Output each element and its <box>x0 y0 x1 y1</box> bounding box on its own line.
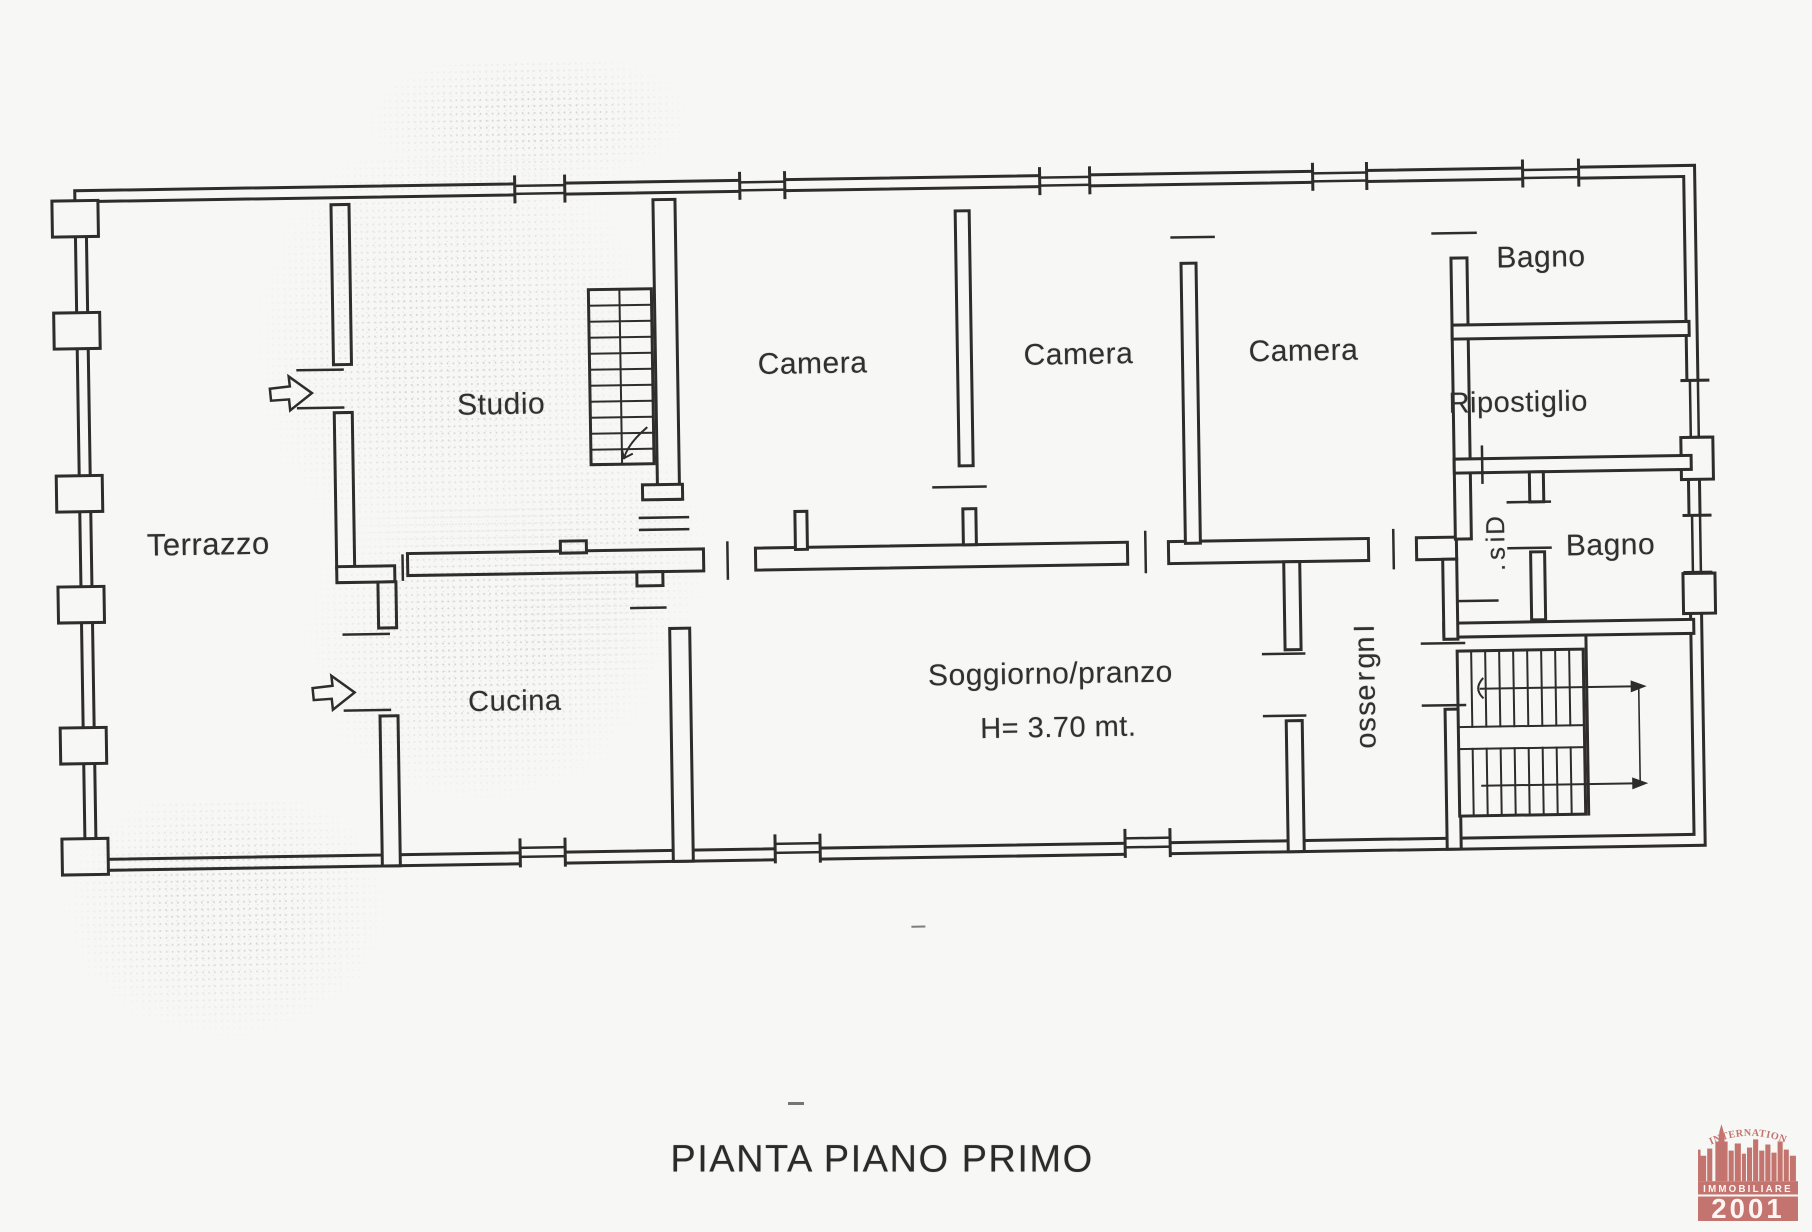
room-label-ingresso: Ingresso <box>1348 620 1384 749</box>
scan-noise <box>59 798 393 1043</box>
room-label-camera-1: Camera <box>757 346 867 382</box>
room-label-bagno-top: Bagno <box>1496 240 1586 275</box>
agency-logo: INTERNATIONAL IMMOBILIARE 2001 <box>1697 1118 1799 1222</box>
scan-noise <box>489 433 713 696</box>
room-label-camera-2: Camera <box>1023 337 1133 373</box>
staircase-lower <box>1457 634 1649 816</box>
room-label-dis: Dis. <box>1479 518 1512 574</box>
right-windows <box>1680 380 1716 613</box>
room-label-terrazzo: Terrazzo <box>147 526 270 564</box>
room-label-cucina: Cucina <box>468 685 562 719</box>
scan-noise <box>363 58 695 193</box>
room-label-camera-3: Camera <box>1248 334 1358 370</box>
logo-year-text: 2001 <box>1711 1193 1785 1222</box>
room-label-studio: Studio <box>457 387 546 422</box>
scan-artifact-dash <box>788 1102 804 1105</box>
room-label-bagno-right: Bagno <box>1566 528 1656 563</box>
room-label-soggiorno-height: H= 3.70 mt. <box>980 711 1137 746</box>
plan-title: PIANTA PIANO PRIMO <box>670 1139 1093 1182</box>
room-label-ripostiglio: Ripostiglio <box>1448 386 1588 421</box>
logo-top-text: INTERNATIONAL <box>1697 1118 1788 1147</box>
room-label-soggiorno: Soggiorno/pranzo <box>928 656 1173 694</box>
floor-plan: Terrazzo Studio Camera Camera Camera Bag… <box>0 0 1812 1232</box>
scanned-floor-plan-page: Terrazzo Studio Camera Camera Camera Bag… <box>0 0 1812 1232</box>
